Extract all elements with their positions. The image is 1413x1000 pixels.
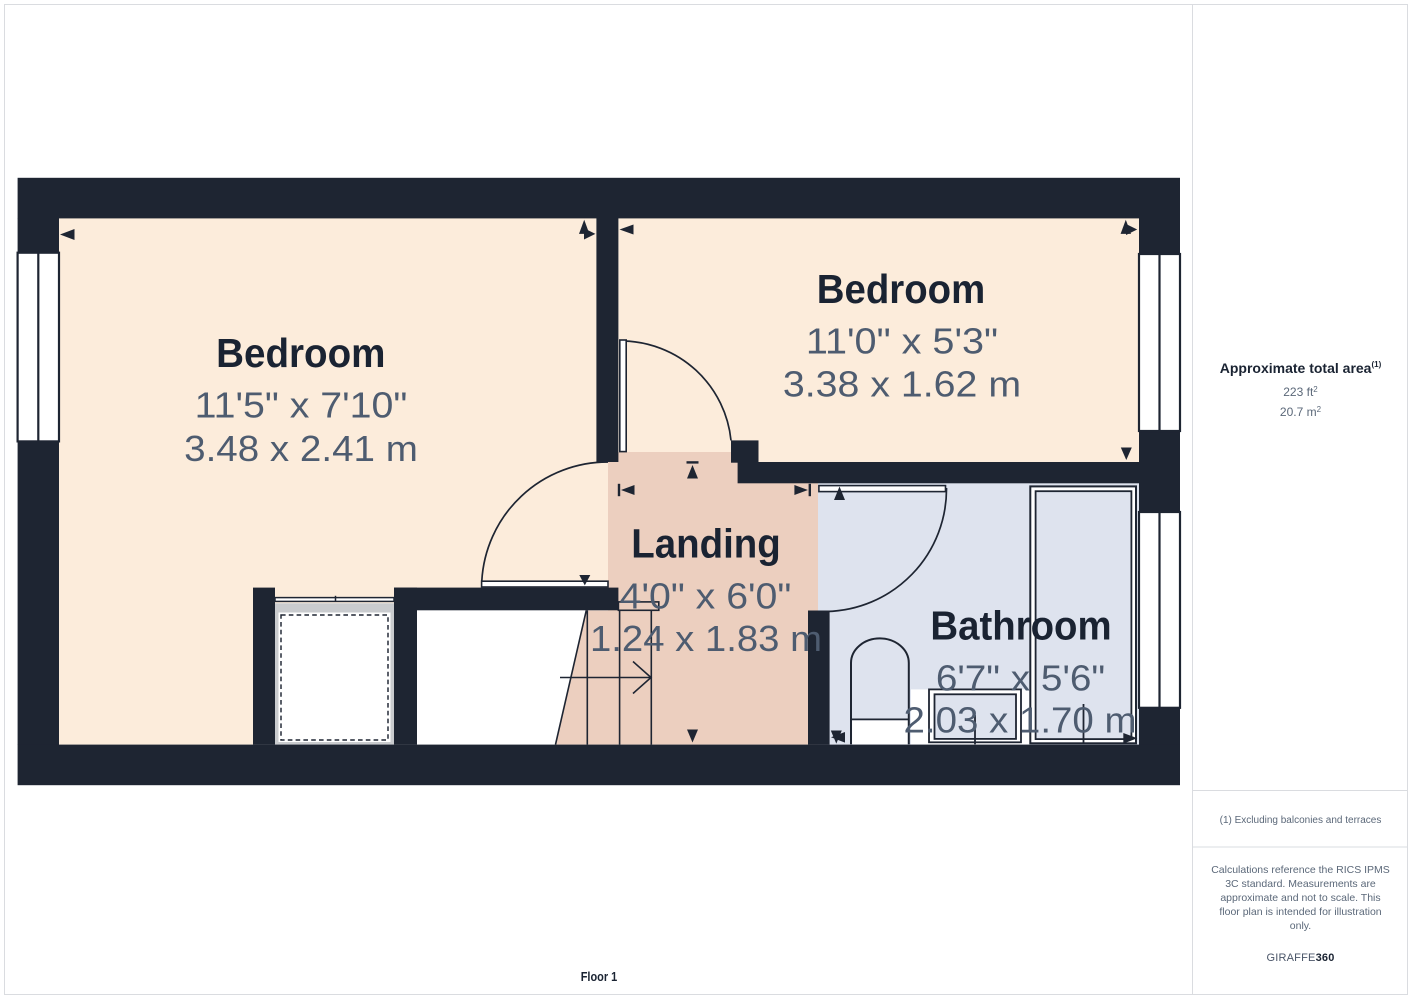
- svg-text:1.24 x 1.83 m: 1.24 x 1.83 m: [590, 618, 822, 659]
- svg-text:2.03 x 1.70 m: 2.03 x 1.70 m: [904, 700, 1137, 741]
- svg-text:11'5" x 7'10": 11'5" x 7'10": [195, 385, 408, 426]
- svg-text:Floor 1: Floor 1: [581, 969, 618, 984]
- svg-text:Bathroom: Bathroom: [930, 603, 1111, 649]
- svg-text:3.48 x 2.41 m: 3.48 x 2.41 m: [184, 428, 418, 469]
- svg-text:3.38 x 1.62 m: 3.38 x 1.62 m: [783, 364, 1021, 405]
- svg-text:4'0" x 6'0": 4'0" x 6'0": [620, 576, 792, 617]
- svg-text:Landing: Landing: [631, 521, 781, 567]
- svg-text:Bedroom: Bedroom: [216, 330, 385, 376]
- svg-text:Bedroom: Bedroom: [817, 266, 985, 312]
- svg-text:6'7" x 5'6": 6'7" x 5'6": [936, 657, 1105, 698]
- svg-text:11'0" x 5'3": 11'0" x 5'3": [806, 320, 998, 361]
